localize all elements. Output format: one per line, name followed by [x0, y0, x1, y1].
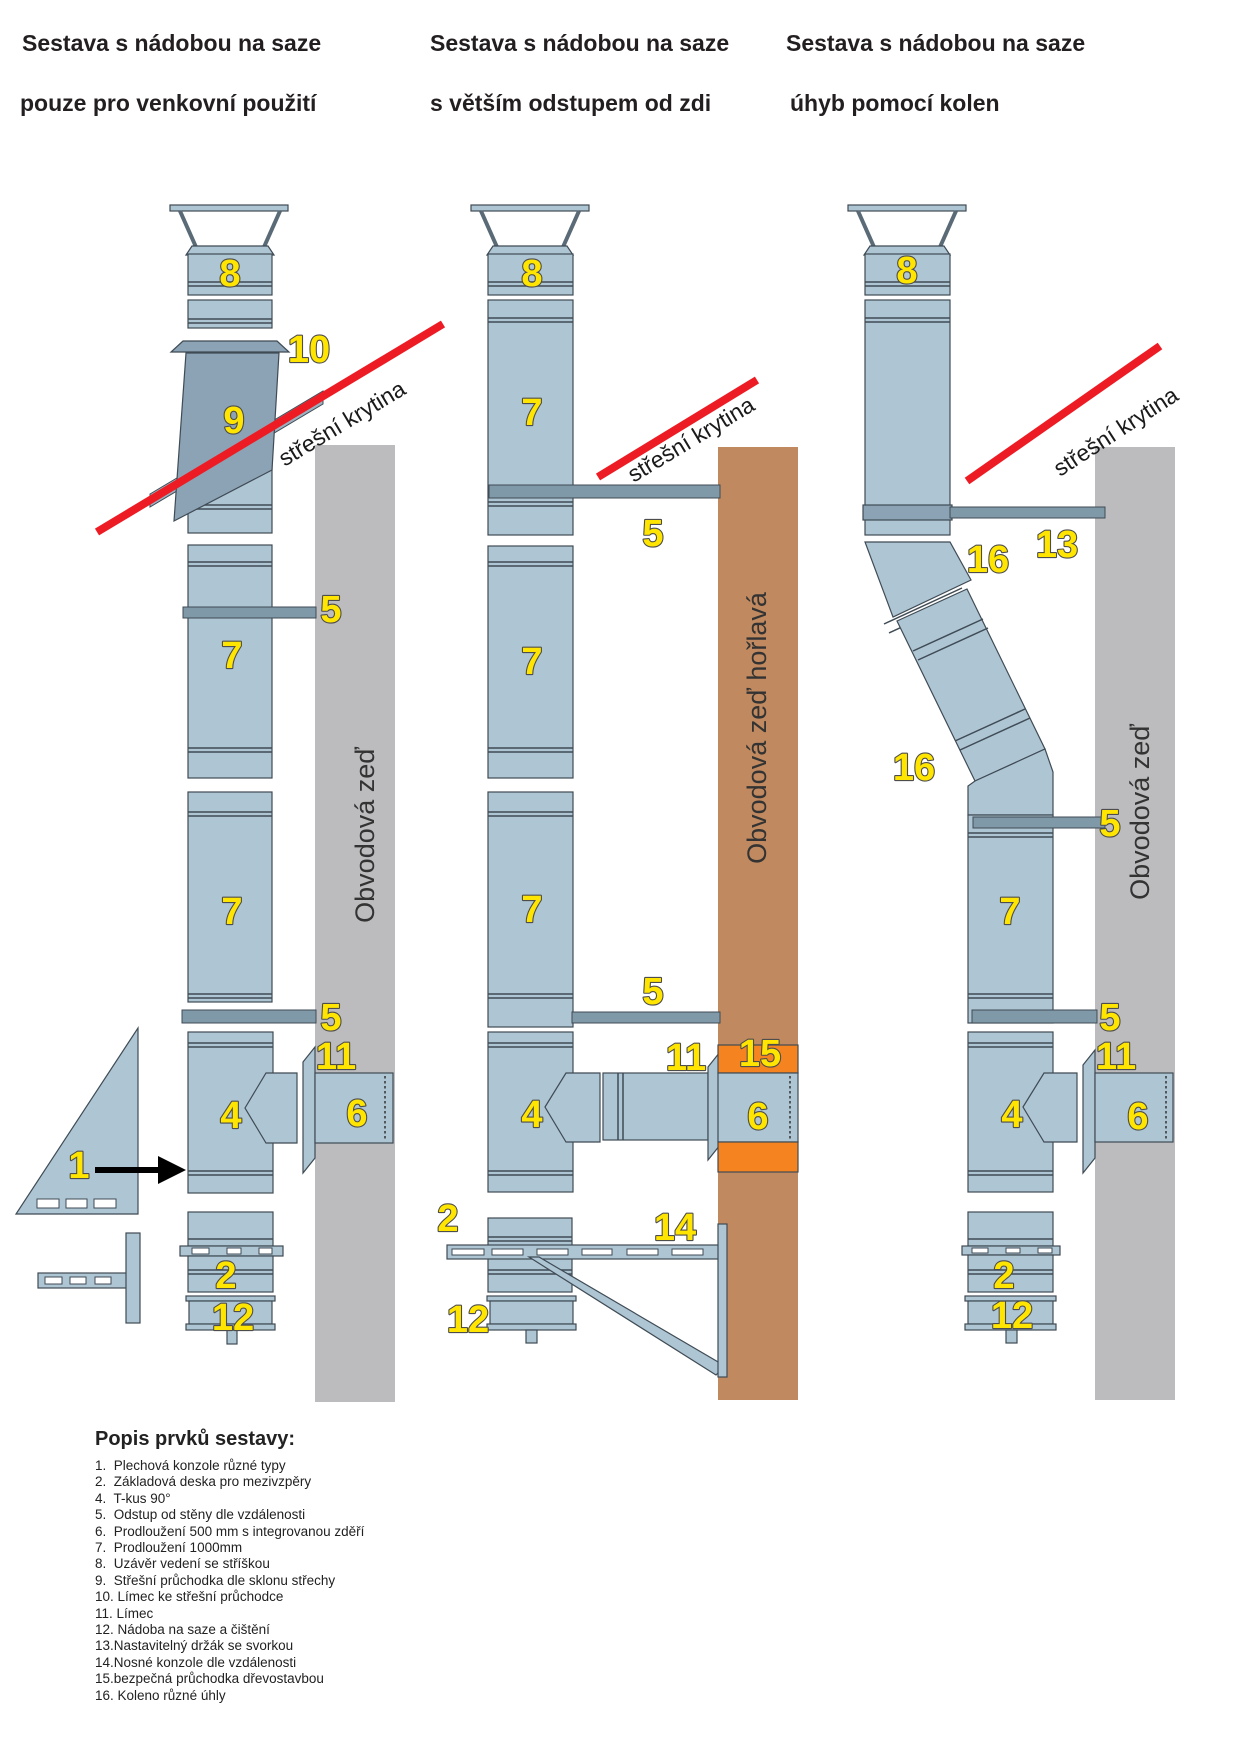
part-number: 7 [521, 641, 542, 683]
part-number: 11 [316, 1036, 356, 1078]
clamp-ring [863, 505, 952, 520]
legend-item: 16. Koleno různé úhly [95, 1688, 364, 1704]
legend-item: 7. Prodloužení 1000mm [95, 1540, 364, 1556]
part-number: 7 [521, 889, 542, 931]
part-number: 11 [666, 1037, 706, 1079]
cap-plate [848, 205, 966, 211]
part-number: 7 [521, 392, 542, 434]
part-number: 2 [215, 1255, 236, 1297]
cap-plate [471, 205, 589, 211]
part-number: 5 [642, 513, 663, 555]
part-number: 7 [221, 635, 242, 677]
wall-collar [303, 1047, 315, 1173]
part-number: 2 [993, 1255, 1014, 1297]
wall-distance-bracket [572, 1012, 720, 1023]
roof-flashing-collar [171, 341, 289, 352]
pipe-section [188, 300, 272, 328]
legend: Popis prvků sestavy: 1. Plechová konzole… [95, 1428, 364, 1704]
part-number: 5 [1099, 997, 1120, 1039]
part-number: 16 [893, 747, 935, 789]
legend-item: 9. Střešní průchodka dle sklonu střechy [95, 1573, 364, 1589]
part-number: 15 [739, 1033, 781, 1075]
legend-item: 8. Uzávěr vedení se stříškou [95, 1556, 364, 1572]
legend-item: 5. Odstup od stěny dle vzdálenosti [95, 1507, 364, 1523]
part-number: 16 [967, 539, 1009, 581]
part-number: 9 [223, 400, 244, 442]
cap-leg [264, 211, 280, 247]
part-number: 5 [320, 997, 341, 1039]
page: { "titles": [ {"line1": "Sestava s nádob… [0, 0, 1240, 1754]
wall-collar [1083, 1050, 1095, 1173]
part-number: 5 [1099, 803, 1120, 845]
wall-distance-bracket [489, 485, 720, 498]
part-number: 10 [288, 329, 330, 371]
cap-leg [180, 211, 196, 247]
wall-distance-bracket [972, 1010, 1097, 1023]
legend-item: 11. Límec [95, 1606, 364, 1622]
legend-item: 1. Plechová konzole různé typy [95, 1458, 364, 1474]
legend-heading: Popis prvků sestavy: [95, 1428, 364, 1451]
soot-container [487, 1296, 576, 1343]
legend-item: 2. Základová deska pro mezivzpěry [95, 1474, 364, 1490]
part-number: 12 [212, 1297, 254, 1339]
part-number: 6 [747, 1096, 768, 1138]
legend-item: 6. Prodloužení 500 mm s integrovanou zdě… [95, 1524, 364, 1540]
part-number: 8 [521, 253, 542, 295]
part-number: 8 [219, 253, 240, 295]
legend-item: 15.bezpečná průchodka dřevostavbou [95, 1671, 364, 1687]
wall-3-label: Obvodová zeď [1125, 724, 1155, 900]
legend-item: 14.Nosné konzole dle vzdálenosti [95, 1655, 364, 1671]
part-number: 5 [642, 971, 663, 1013]
part-number: 7 [999, 891, 1020, 933]
wall-2-flammable [718, 447, 798, 1400]
wall-mount-plate [718, 1224, 727, 1377]
cap-plate [170, 205, 288, 211]
wall-console [38, 1233, 140, 1323]
part-number: 11 [1096, 1036, 1136, 1078]
wall-2-label: Obvodová zeď hořlavá [742, 591, 772, 864]
extension-1000 [865, 300, 950, 535]
part-number: 2 [437, 1198, 458, 1240]
wall-1-label: Obvodová zeď [350, 747, 380, 923]
part-number: 7 [221, 891, 242, 933]
part-number: 14 [654, 1207, 696, 1249]
part-number: 13 [1036, 524, 1078, 566]
legend-item: 10. Límec ke střešní průchodce [95, 1589, 364, 1605]
part-number: 6 [1127, 1096, 1148, 1138]
wall-distance-bracket [973, 817, 1105, 828]
part-number: 12 [991, 1295, 1033, 1337]
wall-distance-bracket [183, 607, 316, 618]
part-number: 1 [68, 1145, 89, 1187]
adjustable-holder-bracket [950, 507, 1105, 518]
part-number: 12 [447, 1299, 489, 1341]
part-number: 8 [896, 250, 917, 292]
legend-item: 12. Nádoba na saze a čištění [95, 1622, 364, 1638]
legend-item: 4. T-kus 90° [95, 1491, 364, 1507]
part-number: 4 [220, 1095, 241, 1137]
part-number: 5 [320, 589, 341, 631]
part-number: 4 [521, 1094, 542, 1136]
wall-distance-bracket [182, 1010, 316, 1023]
legend-item: 13.Nastavitelný držák se svorkou [95, 1638, 364, 1654]
part-number: 6 [346, 1093, 367, 1135]
wall-3 [1095, 447, 1175, 1400]
safe-penetration-bottom [718, 1142, 798, 1172]
part-number: 4 [1001, 1094, 1022, 1136]
